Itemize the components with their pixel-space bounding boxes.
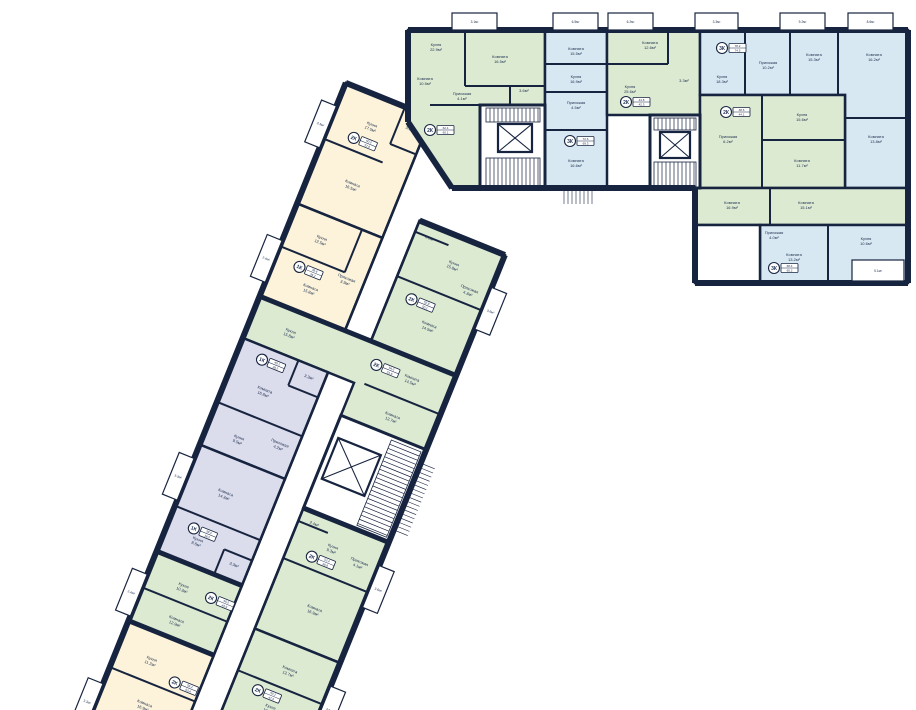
area-label: 3.3м² [679, 78, 689, 83]
balcony: 6.2м² [608, 13, 653, 30]
stair-tread [422, 464, 435, 469]
apartment-badge: 3К72.669.3 [565, 136, 595, 147]
balcony-area-label: 6.2м² [627, 20, 635, 24]
stair-core [650, 115, 700, 188]
balcony: 3.3м² [695, 13, 738, 30]
stair-tread [407, 501, 420, 506]
balcony-area-label: 3.3м² [713, 20, 721, 24]
apartment-badge: 2К48.644.1 [721, 107, 751, 118]
room-label: Кухня10.6м² [860, 236, 873, 246]
svg-text:68.4: 68.4 [787, 264, 793, 268]
svg-text:44.8: 44.8 [639, 98, 645, 102]
balcony-area-label: 6.5м² [572, 20, 580, 24]
stair-tread [418, 472, 431, 477]
svg-text:2К: 2К [427, 128, 434, 134]
apartment-badge: 3К78.274.5 [717, 43, 747, 54]
balcony: 3.1м² [452, 13, 497, 30]
apartment-badge: 2К62.460.1 [425, 125, 455, 136]
svg-text:44.1: 44.1 [739, 113, 745, 117]
stair-tread [401, 514, 414, 519]
svg-text:3К: 3К [567, 139, 574, 145]
stair-tread [413, 484, 426, 489]
room-label: Кухня16.9м² [570, 74, 583, 84]
svg-text:60.1: 60.1 [443, 131, 449, 135]
stair-tread [417, 476, 430, 481]
stair-tread [408, 497, 421, 502]
stair-tread [420, 468, 433, 473]
stair-tread [405, 505, 418, 510]
balcony-area-label: 9.2м² [799, 20, 807, 24]
balcony: 6.5м² [553, 13, 598, 30]
svg-text:2К: 2К [723, 110, 730, 116]
stair-tread [396, 526, 409, 531]
apartment-badge: 3К68.465.2 [769, 263, 799, 274]
floor-plan-svg: 3.3м²2.4м²3.3м²2.4м²3.3м²3.6м²3.6м²3.6м²… [0, 0, 916, 710]
svg-text:74.5: 74.5 [735, 49, 741, 53]
svg-text:69.3: 69.3 [583, 142, 589, 146]
stair-tread [400, 518, 413, 523]
svg-text:78.2: 78.2 [735, 44, 741, 48]
elevator-icon [660, 132, 690, 158]
apartment-badge: 2К44.842.3 [621, 97, 651, 108]
stair-tread [412, 489, 425, 494]
stair-tread [395, 530, 408, 535]
apartment-entry-hall [695, 225, 760, 283]
stair-tread [410, 493, 423, 498]
room-label: Кухня15.6м² [796, 112, 809, 122]
svg-text:48.6: 48.6 [739, 108, 745, 112]
stair-tread [415, 480, 428, 485]
room-label: Кухня18.3м² [716, 74, 729, 84]
svg-text:3К: 3К [719, 46, 726, 52]
svg-text:2К: 2К [623, 100, 630, 106]
svg-text:62.4: 62.4 [443, 126, 449, 130]
svg-text:65.2: 65.2 [787, 269, 793, 273]
svg-text:42.3: 42.3 [639, 103, 645, 107]
balcony: 5.1м² [852, 260, 904, 281]
room-label: Кухня22.9м² [430, 42, 443, 52]
balcony-area-label: 3.1м² [471, 20, 479, 24]
stair-tread [398, 522, 411, 527]
balcony: 8.6м² [848, 13, 893, 30]
stair-tread [403, 509, 416, 514]
elevator-icon [498, 124, 532, 152]
svg-text:3К: 3К [771, 266, 778, 272]
entry-porch-icon [564, 190, 592, 204]
room-label: Кухня25.6м² [624, 84, 637, 94]
balcony-area-label: 5.1м² [874, 269, 882, 273]
svg-text:72.6: 72.6 [583, 137, 589, 141]
area-label: 3.6м² [519, 88, 529, 93]
floor-plan: 3.3м²2.4м²3.3м²2.4м²3.3м²3.6м²3.6м²3.6м²… [0, 0, 916, 710]
balcony: 9.2м² [780, 13, 825, 30]
stair-core [480, 105, 545, 188]
balcony-area-label: 8.6м² [867, 20, 875, 24]
